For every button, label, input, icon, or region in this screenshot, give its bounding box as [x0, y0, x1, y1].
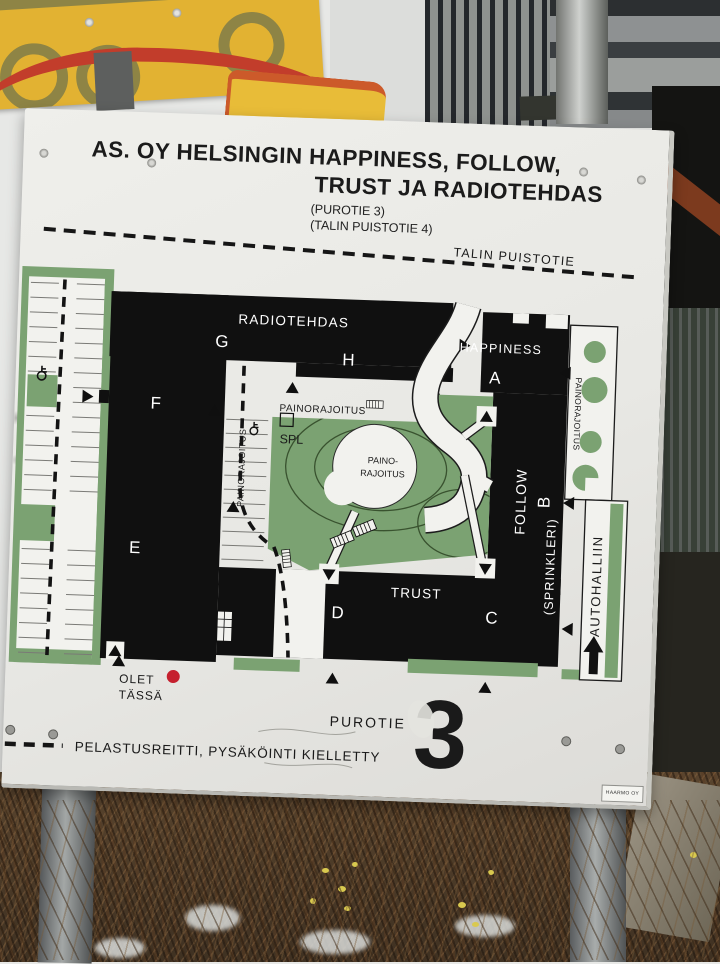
building-trust	[216, 567, 561, 667]
label-happiness: HAPPINESS	[459, 340, 542, 357]
screw-icon	[637, 175, 646, 184]
stair-e: E	[129, 538, 141, 557]
sign-bolt	[172, 8, 182, 18]
building-notch	[546, 314, 568, 329]
direction-arrow-icon	[561, 623, 572, 636]
waste-shed	[217, 611, 233, 642]
stair-c: C	[485, 608, 498, 627]
direction-arrow-icon	[326, 672, 339, 683]
building-radiotehdas	[109, 291, 453, 368]
direction-arrow-icon	[286, 382, 299, 393]
sign-bracket	[94, 51, 135, 111]
weight-limit-label: PAINORAJOITUS	[279, 403, 366, 417]
sign-post-top	[556, 0, 608, 124]
twigs-overlay	[0, 800, 720, 960]
legend-text: PELASTUSREITTI, PYSÄKÖINTI KIELLETTY	[74, 739, 380, 765]
you-are-here-marker	[167, 670, 180, 683]
pavement	[652, 552, 720, 787]
stair-b: B	[534, 496, 553, 508]
building-notch	[513, 313, 529, 324]
label-trust: TRUST	[391, 585, 442, 602]
you-are-here-1: OLET	[119, 672, 155, 687]
street-label-bottom: PUROTIE	[329, 713, 406, 732]
site-map-sign: AS. OY HELSINGIN HAPPINESS, FOLLOW, TRUS…	[1, 108, 674, 810]
stair-a: A	[489, 368, 502, 387]
stair-g: G	[215, 332, 229, 351]
direction-arrow-icon	[478, 682, 491, 693]
entrance-tab	[99, 390, 109, 403]
you-are-here-2: TÄSSÄ	[118, 688, 163, 704]
label-follow: FOLLOW	[511, 468, 529, 535]
wheelchair-icon	[250, 422, 259, 435]
site-plan-map: TALIN PUISTOTIE	[2, 208, 666, 790]
stairs-icon	[282, 549, 292, 567]
weight-limit-center-2: RAJOITUS	[360, 468, 405, 480]
screw-icon	[39, 149, 48, 158]
screw-icon	[579, 167, 588, 176]
stair-h: H	[342, 350, 355, 369]
spl-label: SPL	[279, 432, 303, 447]
stair-d: D	[331, 603, 344, 622]
lawn-strip	[234, 658, 300, 672]
wall-vent	[520, 95, 559, 120]
stair-f: F	[150, 394, 161, 413]
stairs-icon	[366, 400, 383, 408]
weight-limit-label: PAINORAJOITUS	[235, 428, 248, 507]
sign-bolt	[85, 18, 95, 28]
address-line1: (PUROTIE 3)	[310, 202, 385, 219]
truck-bed-line	[0, 0, 318, 11]
maker-sticker: HAARMO OY	[601, 785, 644, 803]
weight-limit-center-1: PAINO-	[368, 455, 399, 466]
legend-dash	[5, 744, 63, 746]
